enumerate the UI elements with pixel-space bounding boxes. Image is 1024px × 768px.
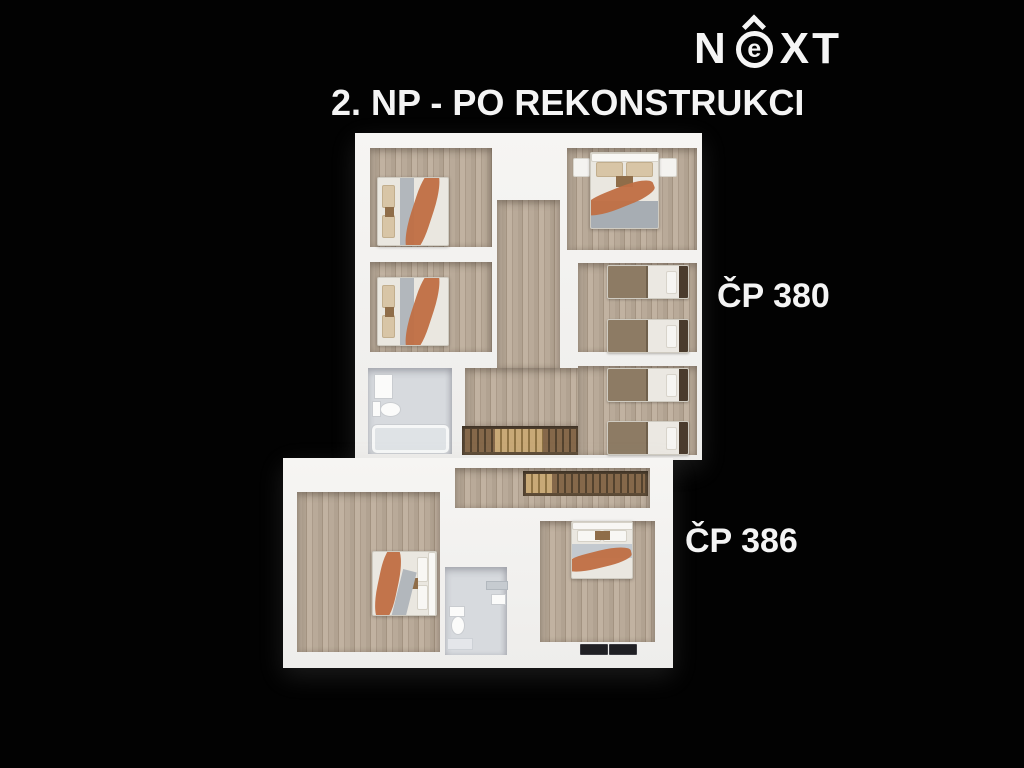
doormat	[580, 644, 608, 655]
double-bed	[590, 152, 659, 229]
headboard	[679, 266, 688, 298]
stair-treads-light	[495, 429, 543, 452]
pillow	[666, 271, 677, 294]
scene: N e XT 2. NP - PO REKONSTRUKCI ČP 380 ČP…	[0, 0, 1024, 768]
staircase-upper	[462, 426, 584, 455]
floorplan-unit-cp386	[283, 458, 673, 668]
headboard	[679, 369, 688, 401]
pillow	[666, 427, 677, 450]
bed-tray	[595, 531, 610, 540]
bed-tray	[385, 207, 394, 217]
floorplan-unit-cp380	[355, 133, 702, 460]
page-title: 2. NP - PO REKONSTRUKCI	[331, 82, 804, 124]
doormat	[609, 644, 637, 655]
headboard	[591, 153, 659, 162]
double-bed	[372, 551, 437, 616]
logo-letter-n: N	[694, 24, 729, 74]
toilet-icon	[380, 402, 401, 417]
brown-blanket	[608, 320, 648, 352]
bed-tray	[385, 307, 394, 317]
single-bed	[607, 319, 689, 353]
bathroom-shelf	[486, 581, 508, 590]
stair-treads	[465, 429, 495, 452]
double-bed	[571, 521, 633, 579]
pillow	[382, 285, 395, 308]
double-bed	[377, 177, 449, 246]
headboard	[428, 552, 436, 616]
hallway-lower-floor	[465, 368, 585, 426]
next-logo: N e XT	[694, 24, 842, 74]
pillow	[382, 215, 395, 238]
unit-label-cp380: ČP 380	[717, 277, 830, 316]
pillow	[666, 374, 677, 397]
bathtub-icon	[372, 425, 449, 453]
pillow	[417, 557, 428, 582]
brown-blanket	[608, 369, 648, 401]
bathroom-cabinet	[374, 374, 393, 399]
pillow	[417, 585, 428, 610]
toilet-icon	[451, 616, 465, 635]
brown-blanket	[608, 422, 648, 454]
washbasin-icon	[491, 594, 506, 605]
pillow	[382, 315, 395, 338]
headboard	[679, 422, 688, 454]
single-bed	[607, 368, 689, 402]
headboard	[572, 522, 633, 530]
staircase-lower	[523, 471, 648, 496]
stair-treads	[543, 429, 581, 452]
pillow	[382, 185, 395, 208]
single-bed	[607, 421, 689, 455]
bath-mat	[447, 638, 473, 650]
logo-circled-e: e	[736, 31, 773, 68]
double-bed	[377, 277, 449, 346]
unit-label-cp386: ČP 386	[685, 522, 798, 561]
nightstand	[659, 158, 677, 177]
logo-letters-xt: XT	[780, 24, 842, 74]
hallway-floor	[497, 200, 560, 368]
pillow	[666, 325, 677, 348]
nightstand	[573, 158, 590, 177]
brown-blanket	[608, 266, 648, 298]
single-bed	[607, 265, 689, 299]
stair-treads-light	[526, 474, 552, 493]
headboard	[679, 320, 688, 352]
stair-treads	[552, 474, 645, 493]
